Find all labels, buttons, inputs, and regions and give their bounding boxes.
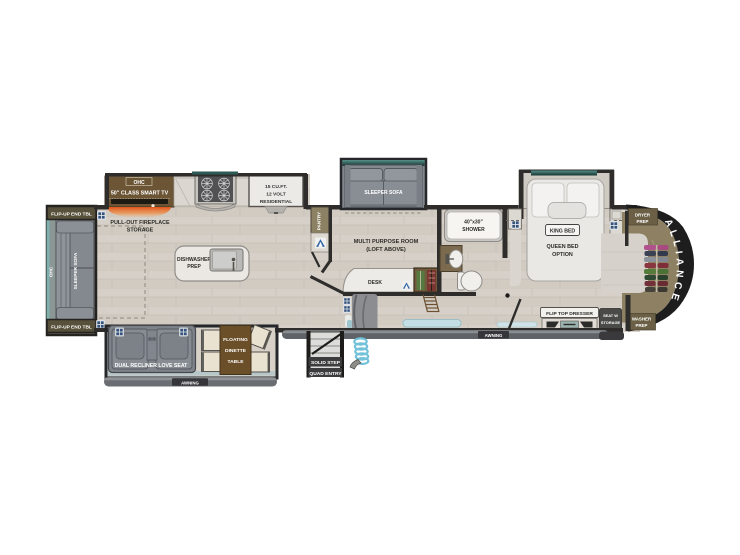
svg-text:SEAT W: SEAT W [603, 313, 618, 318]
svg-text:RESIDENTIAL: RESIDENTIAL [260, 199, 293, 205]
svg-text:DESK: DESK [368, 280, 382, 286]
svg-text:WASHER: WASHER [632, 317, 652, 322]
svg-text:SHOWER: SHOWER [462, 227, 485, 233]
svg-text:MULTI PURPOSE ROOM: MULTI PURPOSE ROOM [354, 239, 419, 245]
svg-text:DISHWASHER: DISHWASHER [177, 257, 211, 263]
svg-text:DINETTE: DINETTE [225, 348, 247, 354]
svg-text:PREP: PREP [636, 323, 648, 328]
svg-text:FLOATING: FLOATING [223, 337, 248, 343]
svg-text:TABLE: TABLE [228, 359, 245, 365]
svg-text:FLIP TOP DRESSER: FLIP TOP DRESSER [546, 311, 593, 317]
svg-text:OHC: OHC [133, 180, 145, 186]
svg-text:PANTRY: PANTRY [317, 212, 322, 230]
svg-text:AWNING: AWNING [181, 380, 199, 385]
svg-text:OHC: OHC [49, 266, 54, 277]
svg-text:SLEEPER SOFA: SLEEPER SOFA [364, 190, 403, 196]
svg-text:QUEEN BED: QUEEN BED [546, 244, 578, 250]
svg-text:PREP: PREP [187, 264, 201, 270]
svg-text:40"x30": 40"x30" [464, 220, 483, 226]
svg-text:STORAGE: STORAGE [127, 228, 154, 234]
svg-text:FLIP-UP END TBL: FLIP-UP END TBL [51, 212, 92, 218]
svg-text:STORAGE: STORAGE [601, 320, 621, 325]
svg-text:OPTION: OPTION [552, 252, 573, 258]
svg-text:DUAL RECLINER LOVE SEAT: DUAL RECLINER LOVE SEAT [115, 363, 189, 369]
svg-text:12 VOLT: 12 VOLT [266, 192, 285, 198]
svg-text:PULL-OUT FIREPLACE: PULL-OUT FIREPLACE [110, 220, 170, 226]
svg-text:(LOFT ABOVE): (LOFT ABOVE) [366, 247, 406, 253]
svg-text:DRYER: DRYER [635, 213, 651, 218]
svg-text:QUAD ENTRY: QUAD ENTRY [309, 371, 342, 377]
svg-text:15 CU.FT.: 15 CU.FT. [265, 184, 288, 190]
svg-text:AWNING: AWNING [485, 333, 503, 338]
svg-text:SOLID STEP: SOLID STEP [311, 360, 341, 366]
svg-text:50" CLASS SMART TV: 50" CLASS SMART TV [111, 191, 169, 197]
svg-text:KING BED: KING BED [550, 229, 576, 235]
svg-text:SLEEPER SOFA: SLEEPER SOFA [73, 252, 79, 289]
svg-text:PREP: PREP [637, 219, 649, 224]
svg-text:FLIP-UP END TBL: FLIP-UP END TBL [51, 325, 92, 331]
